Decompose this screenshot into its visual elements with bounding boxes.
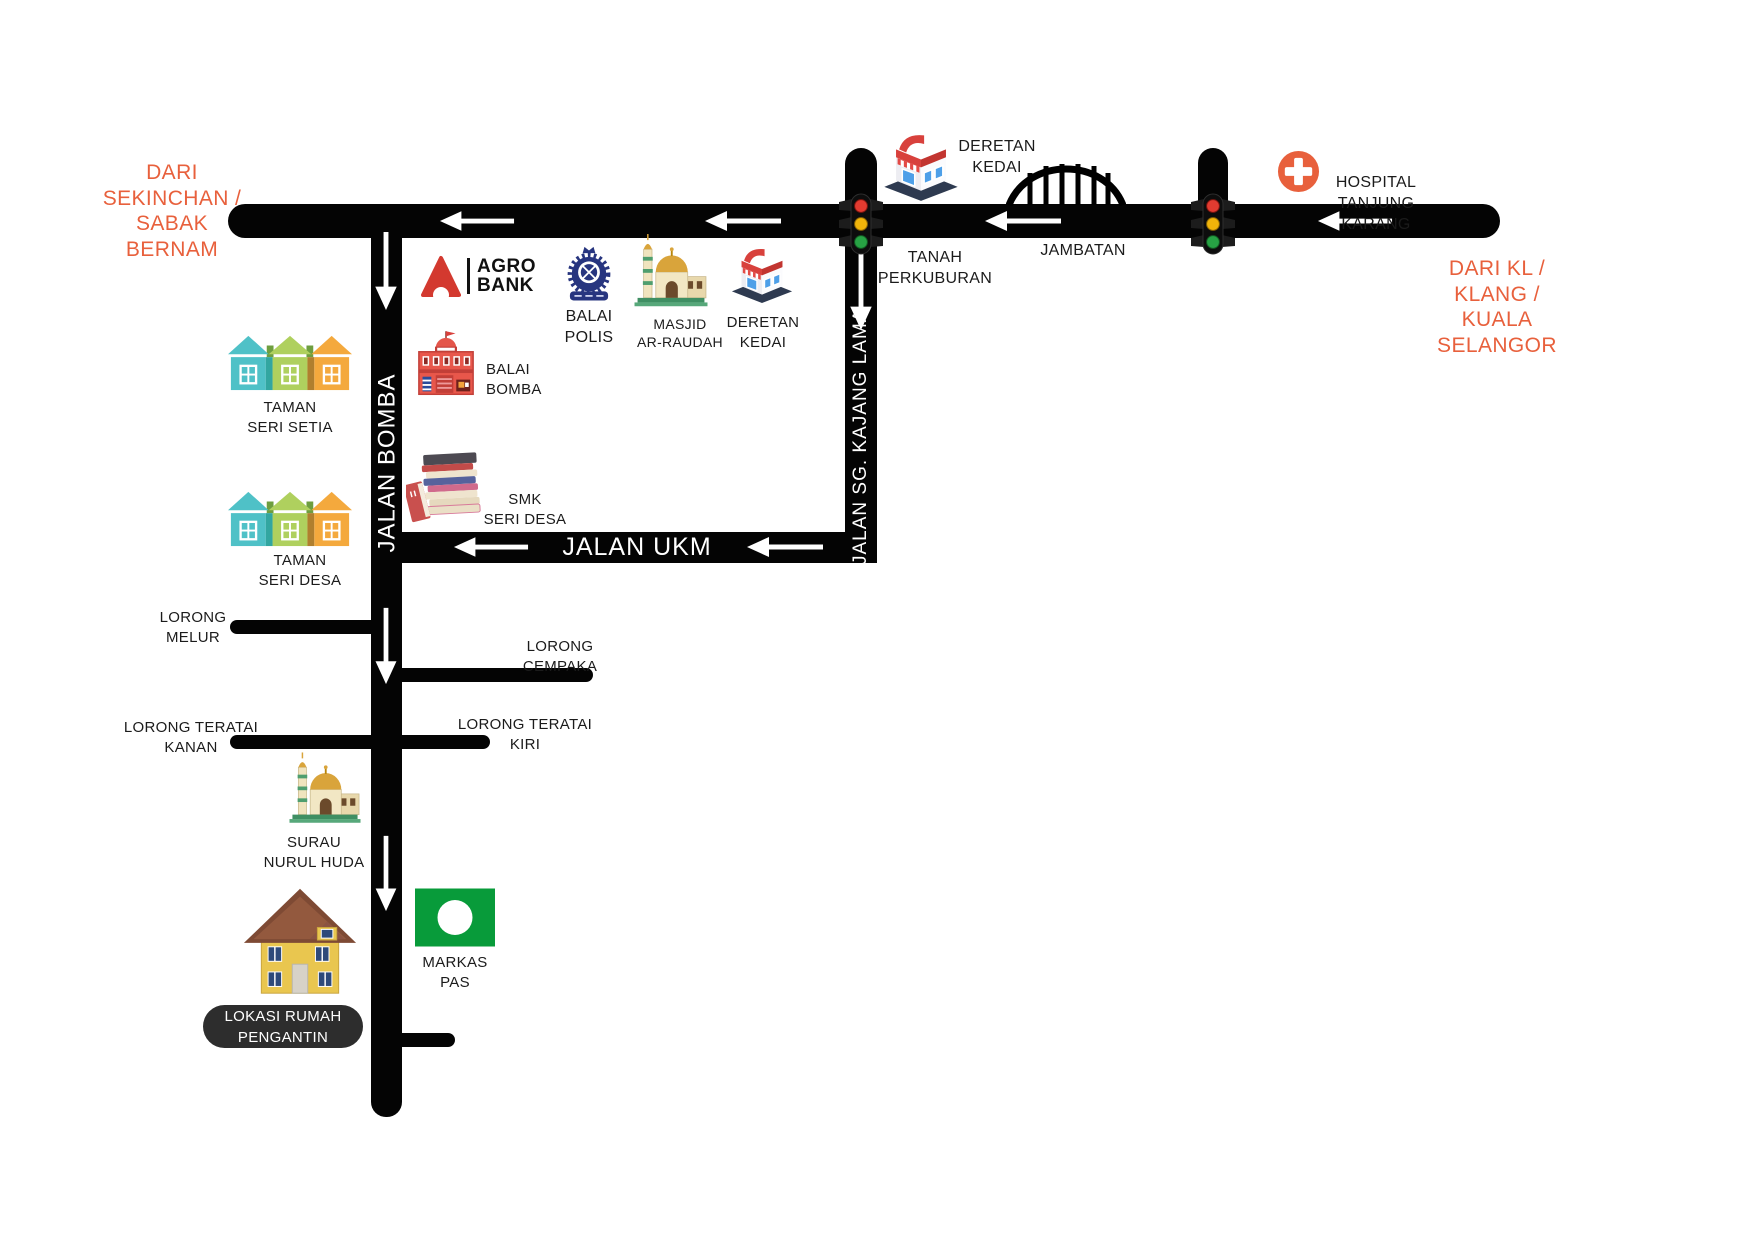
- surau-nurul-huda-label: SURAU NURUL HUDA: [249, 833, 379, 873]
- arrow-left-icon: [698, 210, 788, 232]
- houses-icon: [228, 330, 352, 392]
- hospital-label: HOSPITAL TANJUNG KARANG: [1303, 172, 1449, 235]
- direction-from-kl: DARI KL / KLANG / KUALA SELANGOR: [1430, 256, 1564, 358]
- lokasi-rumah-pengantin-badge: LOKASI RUMAH PENGANTIN: [203, 1005, 363, 1048]
- pas-flag-icon: [415, 888, 495, 947]
- arrow-left-icon: [438, 210, 516, 232]
- agrobank-triangle-icon: [421, 255, 461, 297]
- books-icon: [406, 444, 482, 528]
- surau-icon: [288, 749, 362, 824]
- arrow-left-icon: [745, 536, 825, 558]
- jalan-sg-kajang-lama-road-label: JALAN SG. KAJANG LAMA: [850, 339, 872, 565]
- lorong-teratai-kanan-label: LORONG TERATAI KANAN: [121, 718, 261, 758]
- lorong-cempaka-label: LORONG CEMPAKA: [510, 637, 610, 677]
- arrow-down-icon: [374, 230, 398, 312]
- bottom-side-road: [402, 1033, 455, 1047]
- jalan-bomba-road-label: JALAN BOMBA: [374, 388, 400, 553]
- lorong-melur-label: LORONG MELUR: [143, 608, 243, 648]
- jalan-ukm-road-label: JALAN UKM: [557, 532, 717, 563]
- balai-bomba-label: BALAI BOMBA: [486, 360, 566, 400]
- agrobank-logo: AGRO BANK: [421, 255, 536, 297]
- markas-pas-label: MARKAS PAS: [405, 953, 505, 993]
- fire-station-icon: [413, 328, 479, 399]
- traffic-light-icon: [1187, 193, 1239, 255]
- lorong-teratai-kiri-label: LORONG TERATAI KIRI: [455, 715, 595, 755]
- police-badge-icon: [562, 245, 616, 305]
- agrobank-divider: [467, 258, 470, 294]
- bridge-icon: [1006, 153, 1126, 207]
- arrow-left-icon: [452, 536, 530, 558]
- houses-icon: [228, 486, 352, 548]
- agrobank-wordmark: AGRO BANK: [477, 257, 536, 295]
- wedding-house-icon: [242, 879, 358, 1003]
- smk-seri-desa-label: SMK SERI DESA: [475, 490, 575, 530]
- direction-from-sekinchan: DARI SEKINCHAN / SABAK BERNAM: [100, 160, 244, 262]
- tanah-perkuburan-label: TANAH PERKUBURAN: [875, 247, 995, 289]
- taman-seri-setia-label: TAMAN SERI SETIA: [240, 398, 340, 438]
- arrow-down-icon: [374, 606, 398, 686]
- deretan-kedai-mid-label: DERETAN KEDAI: [713, 313, 813, 353]
- taman-seri-desa-label: TAMAN SERI DESA: [250, 551, 350, 591]
- traffic-light-icon: [835, 193, 887, 255]
- mosque-icon: [633, 230, 709, 308]
- lorong-melur-road: [230, 620, 372, 634]
- shop-icon: [730, 238, 794, 309]
- route-map: JALAN BOMBA JALAN SG. KAJANG LAMA JALAN …: [0, 0, 1748, 1240]
- jambatan-label: JAMBATAN: [1033, 240, 1133, 261]
- arrow-left-icon: [983, 210, 1063, 232]
